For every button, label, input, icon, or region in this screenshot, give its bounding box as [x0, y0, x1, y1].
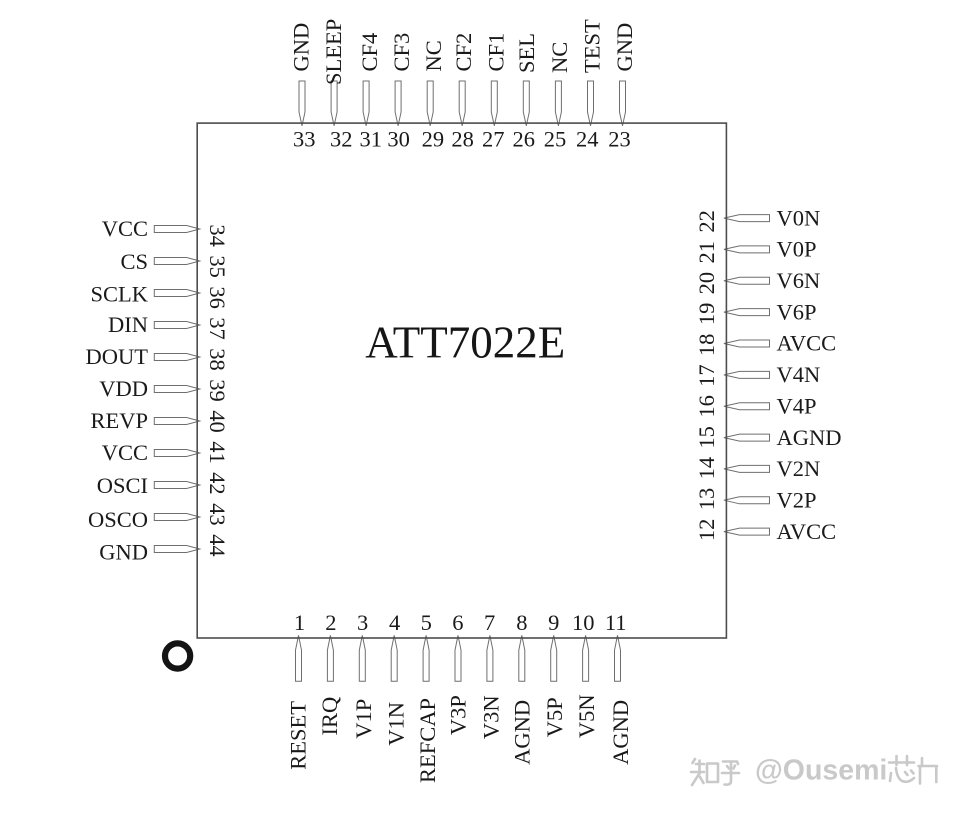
svg-text:21: 21	[694, 241, 719, 264]
svg-text:34: 34	[205, 224, 230, 247]
svg-text:1: 1	[294, 610, 305, 635]
svg-text:V1N: V1N	[383, 702, 408, 746]
svg-text:10: 10	[572, 610, 595, 635]
svg-text:GND: GND	[99, 540, 148, 565]
svg-text:26: 26	[513, 126, 536, 151]
svg-text:@Ousemi: @Ousemi	[755, 755, 887, 787]
svg-text:OSCI: OSCI	[97, 473, 148, 498]
svg-text:43: 43	[205, 503, 230, 526]
svg-text:RESET: RESET	[286, 701, 311, 770]
svg-text:16: 16	[694, 395, 719, 418]
svg-text:DOUT: DOUT	[86, 344, 149, 369]
svg-text:32: 32	[330, 126, 353, 151]
svg-text:NC: NC	[421, 40, 446, 71]
svg-text:V2P: V2P	[777, 487, 817, 512]
svg-text:OSCO: OSCO	[88, 507, 148, 532]
svg-text:SCLK: SCLK	[90, 281, 148, 306]
svg-text:37: 37	[205, 317, 230, 340]
svg-text:31: 31	[360, 126, 383, 151]
svg-text:DIN: DIN	[108, 312, 148, 337]
svg-text:REVP: REVP	[90, 408, 148, 433]
svg-text:7: 7	[484, 610, 495, 635]
svg-text:V2N: V2N	[777, 456, 821, 481]
svg-text:30: 30	[387, 126, 410, 151]
svg-text:ATT7022E: ATT7022E	[365, 318, 565, 368]
svg-text:8: 8	[516, 610, 527, 635]
svg-text:22: 22	[694, 210, 719, 233]
svg-text:15: 15	[694, 426, 719, 449]
svg-text:V3N: V3N	[479, 695, 504, 739]
svg-text:V4P: V4P	[777, 393, 817, 418]
svg-text:REFCAP: REFCAP	[415, 698, 440, 783]
svg-text:35: 35	[205, 255, 230, 278]
svg-text:VCC: VCC	[102, 216, 148, 241]
svg-text:SLEEP: SLEEP	[321, 19, 346, 85]
svg-text:V0N: V0N	[777, 205, 821, 230]
svg-text:VCC: VCC	[102, 440, 148, 465]
svg-text:6: 6	[452, 610, 463, 635]
svg-text:5: 5	[421, 610, 432, 635]
svg-text:CS: CS	[120, 249, 148, 274]
svg-text:14: 14	[694, 457, 719, 480]
svg-text:38: 38	[205, 348, 230, 371]
svg-text:41: 41	[205, 441, 230, 464]
svg-text:27: 27	[482, 126, 505, 151]
svg-text:VDD: VDD	[99, 376, 148, 401]
svg-text:4: 4	[389, 610, 400, 635]
svg-text:TEST: TEST	[579, 19, 604, 73]
svg-text:AVCC: AVCC	[777, 331, 837, 356]
svg-text:V1P: V1P	[351, 699, 376, 739]
svg-text:V3P: V3P	[446, 695, 471, 735]
svg-text:V0P: V0P	[777, 237, 817, 262]
svg-text:44: 44	[205, 534, 230, 557]
svg-text:NC: NC	[547, 42, 572, 73]
svg-text:40: 40	[205, 410, 230, 433]
svg-text:18: 18	[694, 334, 719, 357]
svg-text:2: 2	[325, 610, 336, 635]
svg-text:36: 36	[205, 286, 230, 309]
svg-text:12: 12	[694, 519, 719, 542]
svg-text:SEL: SEL	[514, 33, 539, 73]
svg-text:GND: GND	[612, 23, 637, 72]
svg-text:AGND: AGND	[510, 700, 535, 765]
svg-text:CF2: CF2	[451, 33, 476, 72]
svg-text:23: 23	[608, 126, 631, 151]
svg-text:42: 42	[205, 472, 230, 495]
svg-text:CF4: CF4	[357, 33, 382, 72]
svg-text:17: 17	[694, 364, 719, 387]
svg-text:29: 29	[422, 126, 445, 151]
svg-text:39: 39	[205, 379, 230, 402]
svg-text:25: 25	[544, 126, 567, 151]
svg-text:11: 11	[605, 610, 627, 635]
svg-text:V4N: V4N	[777, 362, 821, 387]
svg-text:33: 33	[293, 126, 316, 151]
svg-text:3: 3	[357, 610, 368, 635]
svg-text:28: 28	[451, 126, 474, 151]
svg-text:9: 9	[548, 610, 559, 635]
svg-text:IRQ: IRQ	[317, 697, 342, 736]
svg-text:13: 13	[694, 488, 719, 511]
svg-text:AGND: AGND	[608, 700, 633, 765]
svg-text:AGND: AGND	[777, 425, 842, 450]
svg-text:19: 19	[694, 303, 719, 326]
svg-text:CF3: CF3	[389, 33, 414, 72]
svg-text:GND: GND	[289, 23, 314, 72]
svg-text:24: 24	[576, 126, 599, 151]
svg-text:20: 20	[694, 272, 719, 295]
svg-text:V6P: V6P	[777, 299, 817, 324]
svg-text:AVCC: AVCC	[777, 519, 837, 544]
svg-text:V5P: V5P	[542, 697, 567, 737]
svg-text:CF1: CF1	[483, 33, 508, 72]
svg-text:V6N: V6N	[777, 268, 821, 293]
svg-text:V5N: V5N	[574, 694, 599, 738]
